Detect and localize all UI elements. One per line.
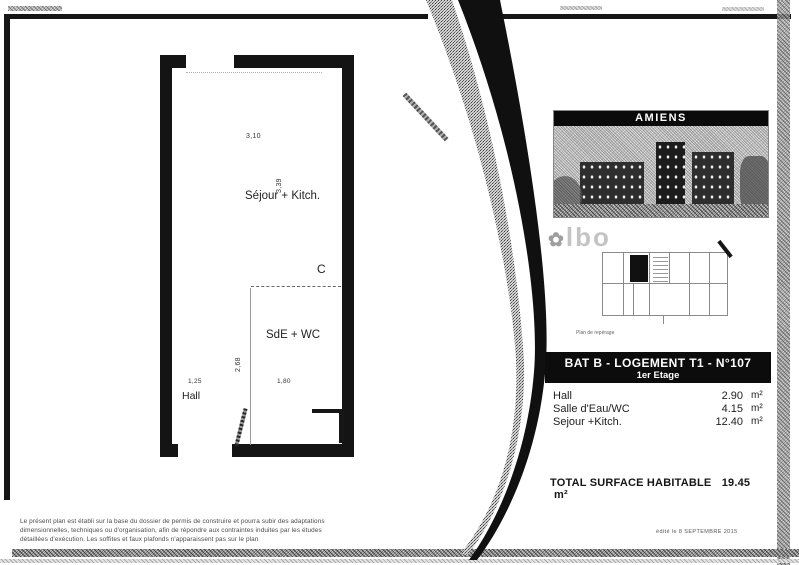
dim-sde-height: 2,68 [235, 357, 242, 372]
unit-title-banner: BAT B - LOGEMENT T1 - N°107 1er Etage [545, 352, 771, 383]
project-photo [554, 126, 768, 217]
disclaimer-line-1: Le présent plan est établi sur la base d… [20, 517, 392, 526]
photo-building-left [580, 162, 644, 208]
area-unit: m² [751, 416, 763, 427]
date-note: édité le 8 SEPTEMBRE 2015 [656, 529, 738, 535]
developer-logo: ✿lbo [548, 222, 611, 253]
project-photo-card: AMIENS [553, 110, 769, 218]
disclaimer-line-2: dimensionnelles, techniques ou d'organis… [20, 526, 392, 535]
unit-floor: 1er Etage [545, 370, 771, 381]
keyplan-partition-1 [623, 253, 624, 315]
keyplan-partition-4 [689, 253, 690, 315]
unit-title: BAT B - LOGEMENT T1 - N°107 [545, 352, 771, 370]
photo-building-tower [656, 142, 685, 210]
area-value: 4.15 [703, 403, 743, 415]
dim-sejour-width: 3,10 [246, 133, 261, 140]
plan-shower-edge-right [339, 409, 344, 443]
keyplan-partition-2 [649, 253, 650, 315]
marker-c: C [317, 262, 326, 276]
dim-sde-width: 1,80 [277, 378, 291, 385]
area-row-sejour: Sejour +Kitch. 12.40 m² [553, 416, 761, 429]
keyplan-bottom-tick [663, 315, 664, 324]
dim-hall-width: 1,25 [188, 378, 202, 385]
room-label-hall: Hall [182, 390, 200, 402]
total-label: TOTAL SURFACE HABITABLE [550, 477, 711, 489]
photo-city-banner: AMIENS [554, 111, 768, 126]
area-label: Salle d'Eau/WC [553, 403, 630, 415]
area-unit: m² [751, 403, 763, 414]
plan-wall-bottom-stub [160, 444, 178, 457]
scanned-plan-sheet: 3,10 3,39 Séjour + Kitch. C SdE + WC 2,6… [0, 0, 799, 565]
area-value: 12.40 [703, 416, 743, 428]
plan-window-line [186, 72, 322, 73]
keyplan-partition-3 [669, 253, 670, 283]
area-row-sde: Salle d'Eau/WC 4.15 m² [553, 403, 761, 416]
keyplan-stairs [653, 256, 668, 282]
area-label: Sejour +Kitch. [553, 416, 622, 428]
disclaimer: Le présent plan est établi sur la base d… [20, 517, 392, 544]
plan-wall-top-stub [160, 55, 186, 68]
keyplan-highlighted-unit [630, 255, 648, 282]
area-label: Hall [553, 390, 572, 402]
total-value: 19.45 [722, 477, 751, 489]
keyplan-partition-5 [709, 253, 710, 315]
keyplan-caption: Plan de repérage [576, 330, 614, 336]
plan-partition-hall [250, 288, 251, 445]
photo-building-right [692, 152, 734, 212]
photo-hedge [554, 204, 768, 217]
plan-wall-left [160, 55, 172, 457]
keyplan-diagram [602, 252, 728, 316]
plan-dashed-line-c [251, 286, 341, 287]
disclaimer-line-3: détaillées d'exécution. Les soffites et … [20, 535, 392, 544]
area-row-hall: Hall 2.90 m² [553, 390, 761, 403]
room-label-sejour: Séjour + Kitch. [245, 190, 320, 202]
logo-text: lbo [566, 222, 611, 252]
area-value: 2.90 [703, 390, 743, 402]
total-unit: m² [554, 489, 568, 501]
total-surface-row: TOTAL SURFACE HABITABLE 19.45 m² [550, 477, 765, 501]
keyplan-partition-6 [633, 283, 634, 315]
plan-wall-bottom [232, 444, 354, 457]
leaf-icon: ✿ [548, 230, 566, 251]
plan-wall-top [234, 55, 354, 68]
plan-wall-right [342, 55, 354, 457]
area-unit: m² [751, 390, 763, 401]
room-label-sde: SdE + WC [266, 329, 320, 341]
